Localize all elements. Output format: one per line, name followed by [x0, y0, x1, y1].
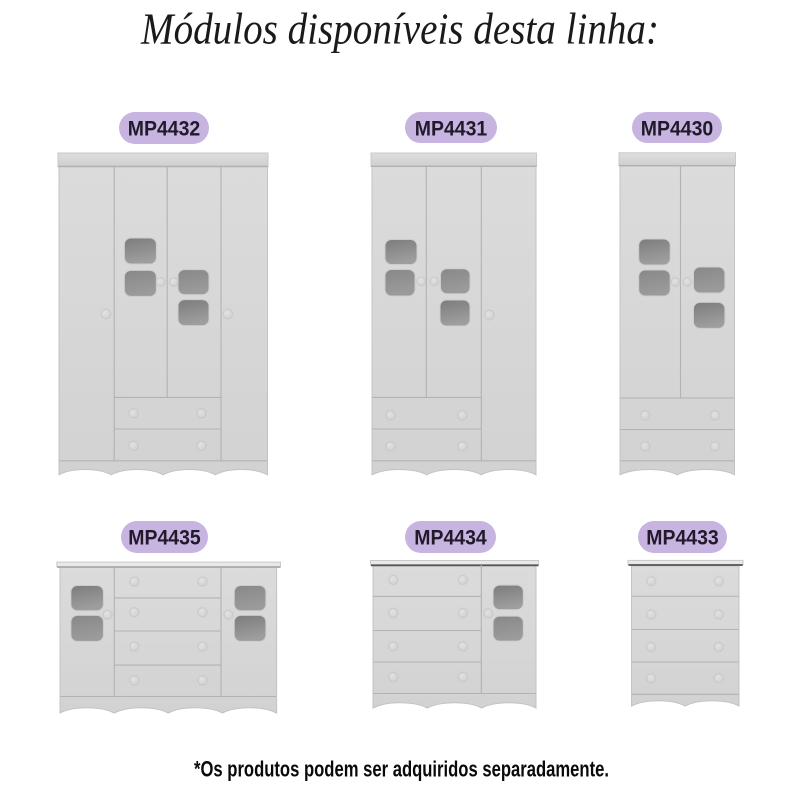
- svg-text:MP4431: MP4431: [415, 117, 488, 141]
- svg-text:*Os produtos podem ser adquiri: *Os produtos podem ser adquiridos separa…: [194, 756, 609, 781]
- svg-text:MP4434: MP4434: [414, 526, 487, 550]
- svg-text:MP4435: MP4435: [128, 526, 201, 550]
- svg-text:MP4430: MP4430: [641, 117, 714, 141]
- svg-text:MP4432: MP4432: [128, 117, 201, 141]
- svg-text:MP4433: MP4433: [646, 526, 719, 550]
- svg-text:Módulos disponíveis desta linh: Módulos disponíveis desta linha:: [140, 4, 659, 53]
